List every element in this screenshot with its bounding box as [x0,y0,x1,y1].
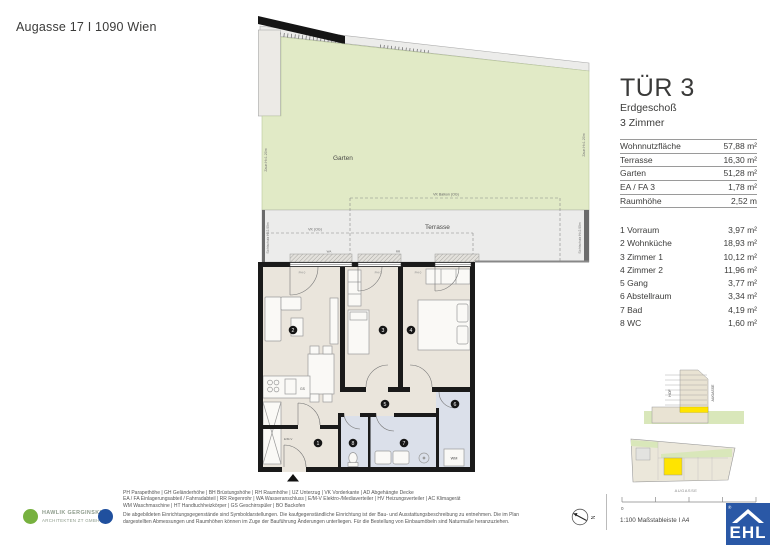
svg-text:PH 0: PH 0 [375,271,382,275]
emv-label: E/M-V [284,437,292,441]
windows [290,263,471,267]
room-area: 10,12 m² [723,251,757,264]
section-tower [680,370,708,412]
floor-plan: 3.06 x 2.30 3.06 x 2.30 Garten Zaun H=1.… [258,10,593,482]
legend-line: WM Waschmaschine | HT Handtuchheizkörper… [123,503,605,509]
vk-balkon-label: VK Balkon (OG) [433,193,459,197]
room-area: 4,19 m² [728,304,757,317]
room-label: 6 Abstellraum [620,290,672,303]
metric-label: Raumhöhe [620,197,662,206]
privacy-screen-label-right: Sichtschutz H=2.00m [578,222,582,253]
architect-blue-dot-icon [98,509,113,524]
svg-text:2: 2 [292,328,295,334]
room-area: 3,97 m² [728,224,757,237]
garden-label: Garten [333,155,353,162]
side-path [258,30,280,116]
metric-label: Terrasse [620,156,653,165]
metric-row: Garten51,28 m² [620,166,757,180]
svg-text:8: 8 [352,441,355,447]
metric-value: 57,88 m² [723,142,757,151]
window-sills [290,254,479,262]
unit-title: TÜR 3 [620,74,695,103]
footer-divider [606,494,607,530]
room-label: 4 Zimmer 2 [620,264,663,277]
legend-block: PH Parapethöhe | GH Geländerhöhe | BH Br… [123,490,605,525]
fence-label-left: Zaun H=1.20m [264,148,268,171]
terrace-wall-right [584,210,589,262]
scale-text: 1:100 Maßstableiste I A4 [620,517,689,524]
fence-label-right: Zaun H=1.20m [582,133,586,156]
svg-text:PH 0: PH 0 [415,271,422,275]
ehl-roof-icon [730,506,766,524]
svg-text:7: 7 [403,441,406,447]
metric-row: Wohnnutzfläche57,88 m² [620,139,757,153]
vk-og-label: VK (OG) [308,228,322,232]
svg-text:PH 0: PH 0 [299,271,306,275]
room-row: 4 Zimmer 211,96 m² [620,264,757,277]
svg-text:1: 1 [317,441,320,447]
metric-value: 1,78 m² [728,183,757,192]
room-row: 6 Abstellraum3,34 m² [620,290,757,303]
room-row: 1 Vorraum3,97 m² [620,224,757,237]
metric-row: Raumhöhe2,52 m [620,194,757,209]
room-area: 1,60 m² [728,317,757,330]
legend-line: dargestellten Abmessungen und Raumhöhen … [123,519,605,525]
ehl-wordmark: EHL [726,523,770,543]
page-title: Augasse 17 I 1090 Wien [16,20,157,34]
section-highlight [680,407,708,413]
ehl-logo: ® EHL [726,503,770,545]
room-row: 7 Bad4,19 m² [620,304,757,317]
wa-label: WA [327,250,332,254]
site-plan: AUGASSE [628,432,746,494]
architect-name: HAWLIK GERGINSKI [42,510,101,516]
terrace-label: Terrasse [425,224,450,231]
architect-subtitle: ARCHITEKTEN ZT GMBH [42,518,100,523]
room-label: 3 Zimmer 1 [620,251,663,264]
hof-label: HOF [668,389,672,396]
room-label: 8 WC [620,317,641,330]
entrance-arrow-icon [287,474,299,482]
wm-label: WM [451,457,458,461]
room-label: 1 Vorraum [620,224,659,237]
metric-value: 2,52 m [731,197,757,206]
gs-label: GS [300,387,306,391]
privacy-screen-label-left: Sichtschutz H=2.00m [266,222,270,253]
metrics-table: Wohnnutzfläche57,88 m² Terrasse16,30 m² … [620,139,757,208]
augasse-site-label: AUGASSE [675,488,698,493]
room-row: 8 WC1,60 m² [620,317,757,330]
svg-text:5: 5 [384,402,387,408]
room-label: 2 Wohnküche [620,237,672,250]
unit-floor: Erdgeschoß [620,102,677,114]
svg-text:6: 6 [454,402,457,408]
metric-row: EA / FA 31,78 m² [620,180,757,194]
room-area: 3,34 m² [728,290,757,303]
unit-room-count: 3 Zimmer [620,117,664,129]
terrace-edge [475,261,589,263]
room-label: 7 Bad [620,304,642,317]
room-row: 2 Wohnküche18,93 m² [620,237,757,250]
metric-value: 51,28 m² [723,169,757,178]
room-label: 5 Gang [620,277,648,290]
terrace-wall-left [262,210,265,262]
room-list: 1 Vorraum3,97 m² 2 Wohnküche18,93 m² 3 Z… [620,224,757,330]
room-area: 11,96 m² [724,264,757,277]
augasse-section-label: AUGASSE [711,384,715,402]
metric-row: Terrasse16,30 m² [620,153,757,167]
metric-label: EA / FA 3 [620,183,655,192]
room-row: 3 Zimmer 110,12 m² [620,251,757,264]
metric-value: 16,30 m² [723,156,757,165]
building-section-diagram: HOF AUGASSE [640,357,746,429]
room-row: 5 Gang3,77 m² [620,277,757,290]
room-area: 3,77 m² [728,277,757,290]
svg-text:4: 4 [410,328,413,334]
site-highlight-unit [664,458,682,475]
room-area: 18,93 m² [723,237,757,250]
metric-label: Wohnnutzfläche [620,142,681,151]
metric-label: Garten [620,169,646,178]
site-sub-building [636,448,650,460]
architect-green-dot-icon [23,509,38,524]
scale-zero-label: 0 [621,506,624,511]
svg-text:3: 3 [382,328,385,334]
architect-logo: HAWLIK GERGINSKI ARCHITEKTEN ZT GMBH [15,505,120,531]
